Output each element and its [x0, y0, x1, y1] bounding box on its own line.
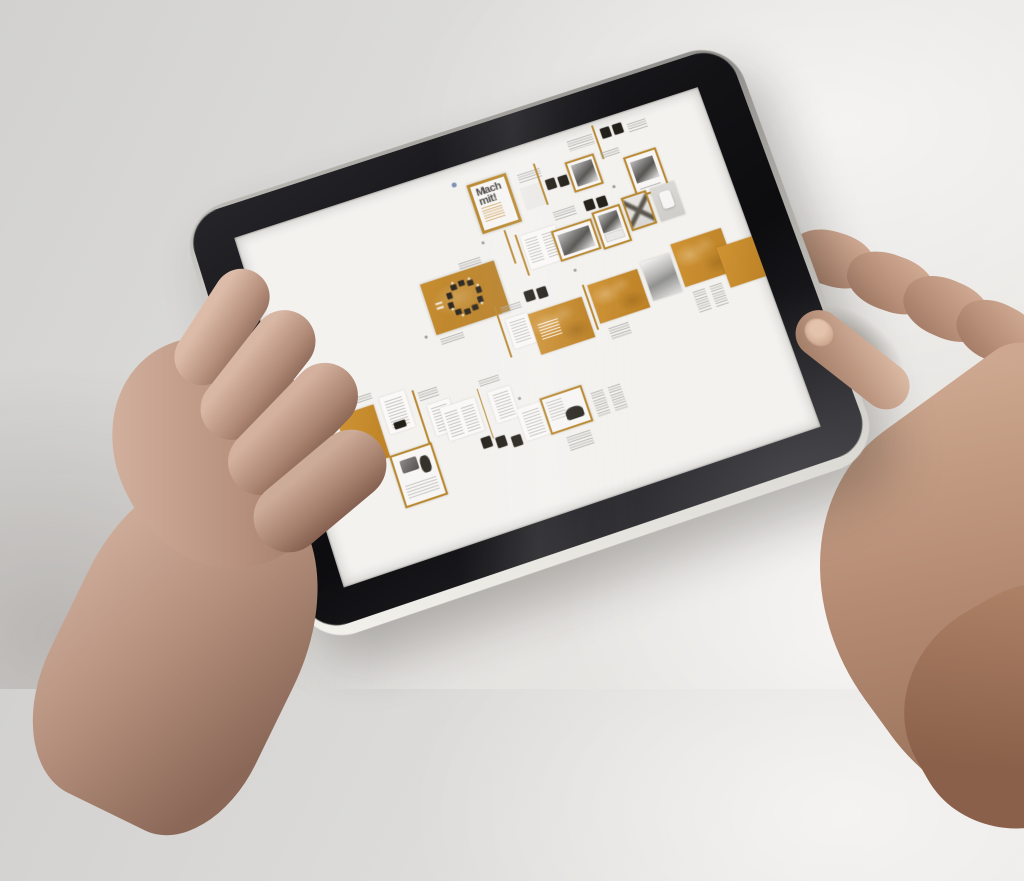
caption-columns — [590, 383, 629, 418]
orange-spread — [588, 269, 651, 324]
page-number-dot — [574, 268, 578, 272]
photo-placeholder — [630, 155, 661, 184]
caption-block — [553, 205, 577, 221]
photo-thumb — [599, 126, 612, 139]
photo-thumb — [545, 177, 558, 190]
page-number-dot — [481, 241, 485, 245]
photo-thumb — [536, 286, 549, 299]
blue-mark — [451, 182, 457, 188]
caption-block — [566, 133, 595, 151]
photo-thumb — [495, 435, 508, 449]
white-title-lines — [538, 318, 563, 341]
photo-thumb — [523, 289, 536, 302]
photo-thumb — [511, 434, 524, 448]
photo-thumb — [558, 175, 571, 188]
caption-block — [418, 387, 439, 401]
framed-photo-page — [565, 154, 604, 193]
caption-block — [627, 118, 648, 132]
photo-thumb — [583, 198, 596, 211]
page-number-dot — [424, 336, 428, 340]
photo-placeholder — [570, 159, 598, 187]
caption-block — [440, 331, 466, 347]
cover-page-mach-mit: Mach mit! — [466, 173, 521, 234]
photo-thumb — [596, 195, 609, 208]
orange-table-scene-page — [420, 260, 511, 334]
thumb-nail — [798, 312, 840, 353]
photo-placeholder — [598, 210, 623, 233]
photo-thumb — [611, 123, 624, 136]
framed-photo-page — [550, 219, 601, 262]
page-number-dot — [612, 185, 616, 189]
photo-thumb — [480, 435, 493, 449]
framed-collage-page — [389, 442, 448, 508]
caption-block — [600, 148, 621, 161]
photo-placeholder — [557, 225, 595, 256]
caption-columns — [692, 282, 730, 314]
